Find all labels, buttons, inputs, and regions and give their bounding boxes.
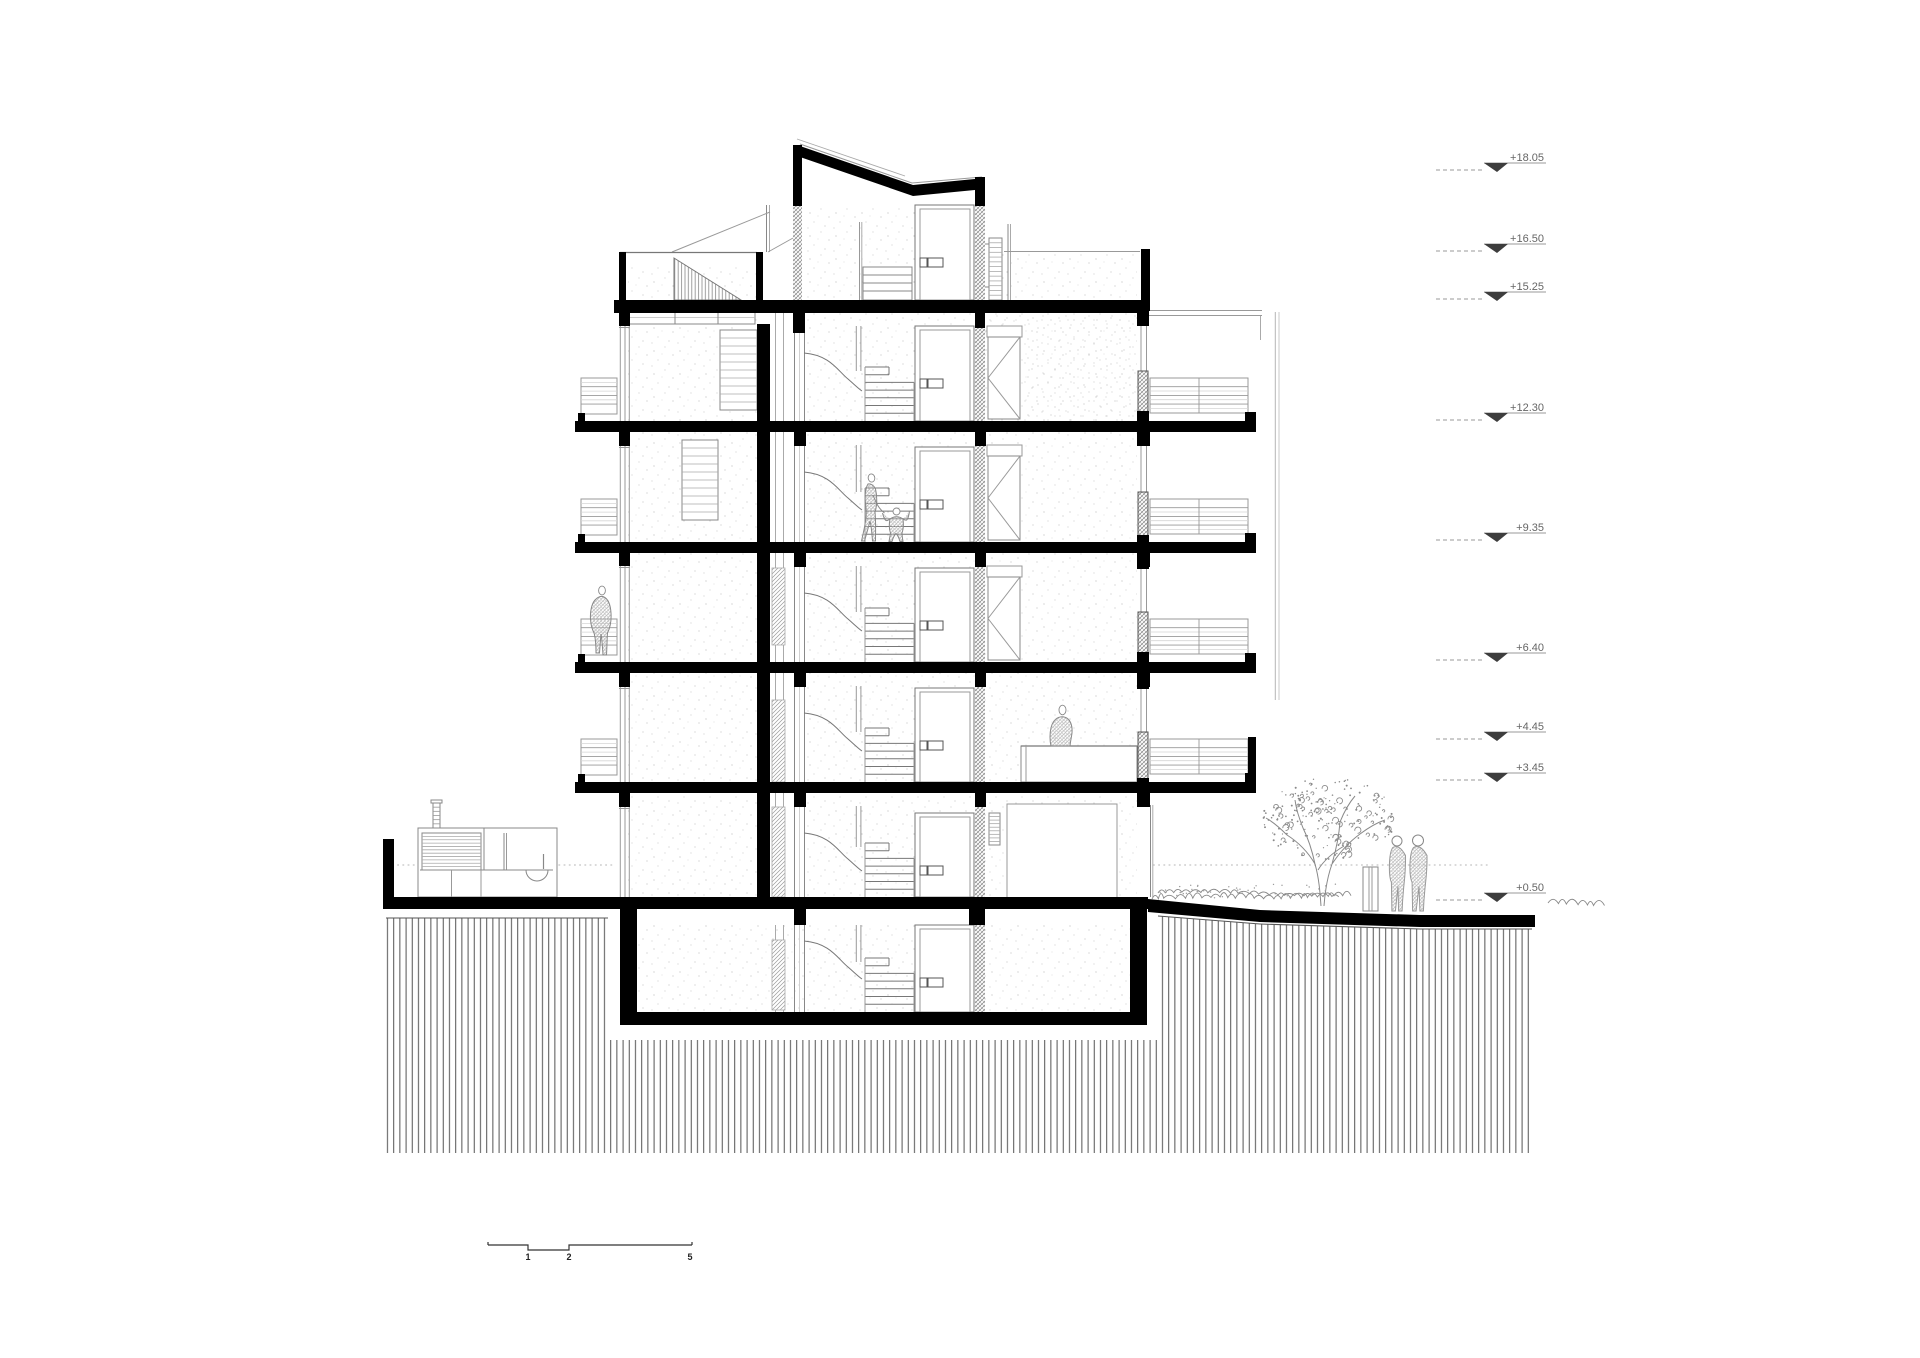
- svg-text:+4.45: +4.45: [1516, 721, 1544, 733]
- svg-text:+18.05: +18.05: [1510, 152, 1544, 164]
- svg-text:+9.35: +9.35: [1516, 522, 1544, 534]
- svg-text:1: 1: [525, 1252, 530, 1262]
- svg-text:+12.30: +12.30: [1510, 402, 1544, 414]
- svg-text:+0.50: +0.50: [1516, 882, 1544, 894]
- svg-text:2: 2: [566, 1252, 571, 1262]
- svg-text:5: 5: [687, 1252, 692, 1262]
- svg-text:+3.45: +3.45: [1516, 762, 1544, 774]
- svg-text:+6.40: +6.40: [1516, 642, 1544, 654]
- svg-text:+15.25: +15.25: [1510, 281, 1544, 293]
- svg-text:+16.50: +16.50: [1510, 233, 1544, 245]
